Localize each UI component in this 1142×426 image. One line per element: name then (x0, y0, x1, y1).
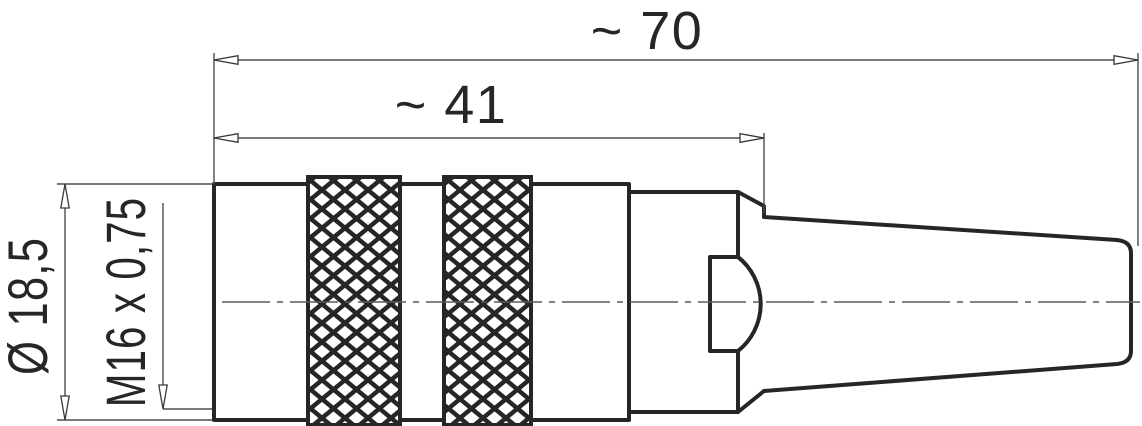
arrowhead-overall-right (1114, 56, 1138, 65)
arrowhead-body-right (740, 134, 764, 143)
dimension-arrowheads (61, 56, 1138, 420)
cable-clamp-detail (710, 257, 761, 351)
label-overall-length: ~ 70 (591, 1, 704, 61)
knurl-band-rear (444, 177, 531, 425)
arrowhead-diameter-bottom (61, 396, 69, 420)
leader-line-thread (163, 203, 212, 409)
label-body-length: ~ 41 (395, 75, 508, 135)
cable-boot (764, 217, 1131, 391)
knurl-band-front (308, 177, 400, 425)
connector-technical-drawing: ~ 70 ~ 41 Ø 18,5 M16 x 0,75 (0, 0, 1142, 426)
arrowhead-body-left (214, 134, 238, 143)
label-diameter: Ø 18,5 (0, 237, 59, 375)
arrowhead-diameter-top (61, 184, 69, 208)
technical-drawing-canvas: ~ 70 ~ 41 Ø 18,5 M16 x 0,75 (0, 0, 1142, 426)
arrowhead-thread-leader (159, 385, 167, 409)
dimension-lines (57, 53, 1138, 420)
label-thread: M16 x 0,75 (96, 197, 158, 407)
arrowhead-overall-left (214, 56, 238, 65)
